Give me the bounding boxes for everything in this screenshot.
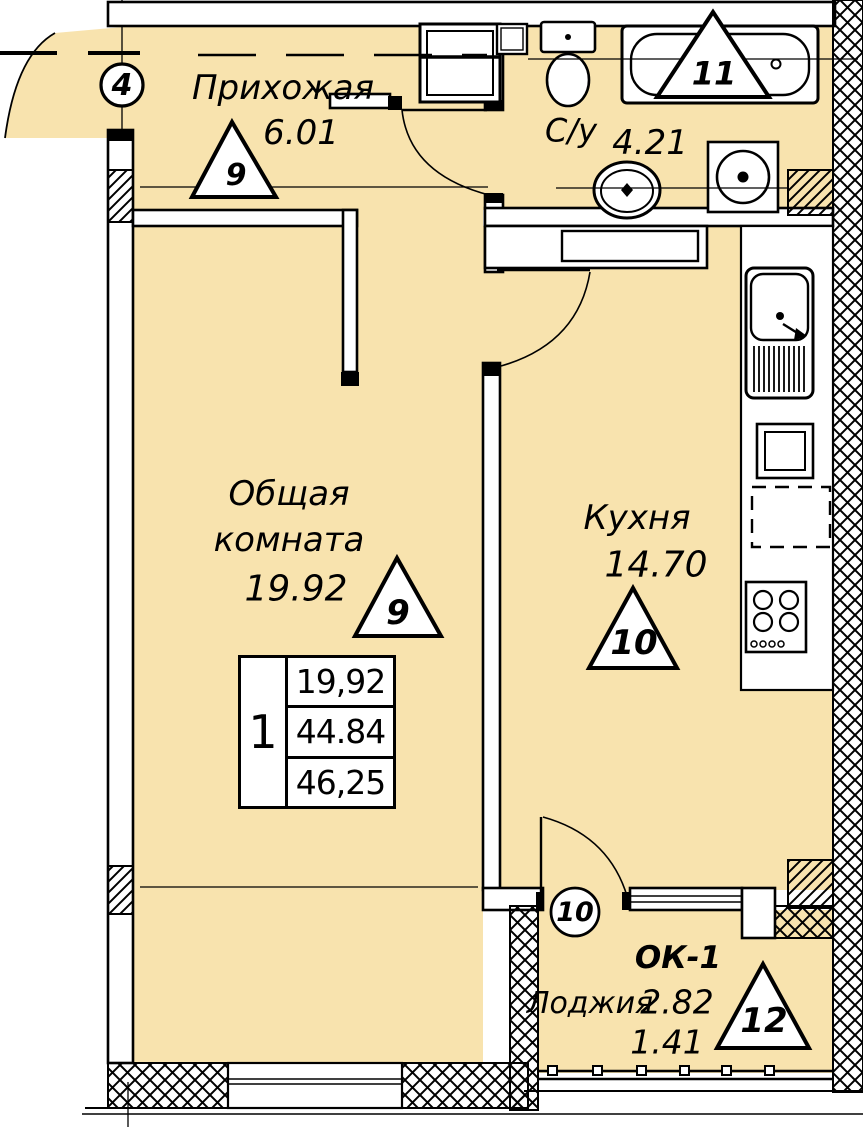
loggia-window-mark: ОК-1 xyxy=(635,938,721,980)
zone-number-bathroom: 11 xyxy=(692,52,737,95)
area-reduced-label-loggia: 1.41 xyxy=(630,1021,703,1066)
summary-rooms-count: 1 xyxy=(241,658,288,806)
zone-number-living: 9 xyxy=(386,591,410,637)
zone-number-loggia: 12 xyxy=(740,999,787,1045)
summary-total-area: 46,25 xyxy=(288,756,393,806)
floor-plan-drawing xyxy=(0,0,863,1127)
area-label-kitchen: 14.70 xyxy=(604,542,707,591)
room-label-kitchen: Кухня xyxy=(583,496,690,542)
zone-number-kitchen: 10 xyxy=(610,621,657,667)
axis-marker-10-label: 10 xyxy=(556,895,594,931)
stove xyxy=(746,582,806,652)
room-label-living: Общая комната xyxy=(214,472,365,564)
bath-sink xyxy=(594,162,660,218)
room-label-hallway: Прихожая xyxy=(192,66,374,112)
area-label-bathroom: 4.21 xyxy=(612,121,688,167)
room-label-bathroom: С/у xyxy=(545,109,597,152)
area-label-loggia: 2.82 xyxy=(640,981,713,1026)
floor-plan: Прихожая 6.01 9 4 С/у 4.21 11 Общая комн… xyxy=(0,0,863,1127)
area-label-living: 19.92 xyxy=(244,566,347,615)
axis-marker-4-label: 4 xyxy=(112,66,133,107)
washing-machine xyxy=(708,142,778,212)
summary-living-area: 19,92 xyxy=(288,658,393,705)
area-label-hallway: 6.01 xyxy=(263,111,339,157)
kitchen-sink xyxy=(746,268,813,398)
kitchen-oven xyxy=(757,424,813,478)
room-label-loggia: Лоджия xyxy=(527,984,653,1025)
summary-table: 1 19,92 44.84 46,25 xyxy=(238,655,396,809)
summary-apartment-area: 44.84 xyxy=(288,705,393,755)
zone-number-hallway: 9 xyxy=(226,156,247,197)
